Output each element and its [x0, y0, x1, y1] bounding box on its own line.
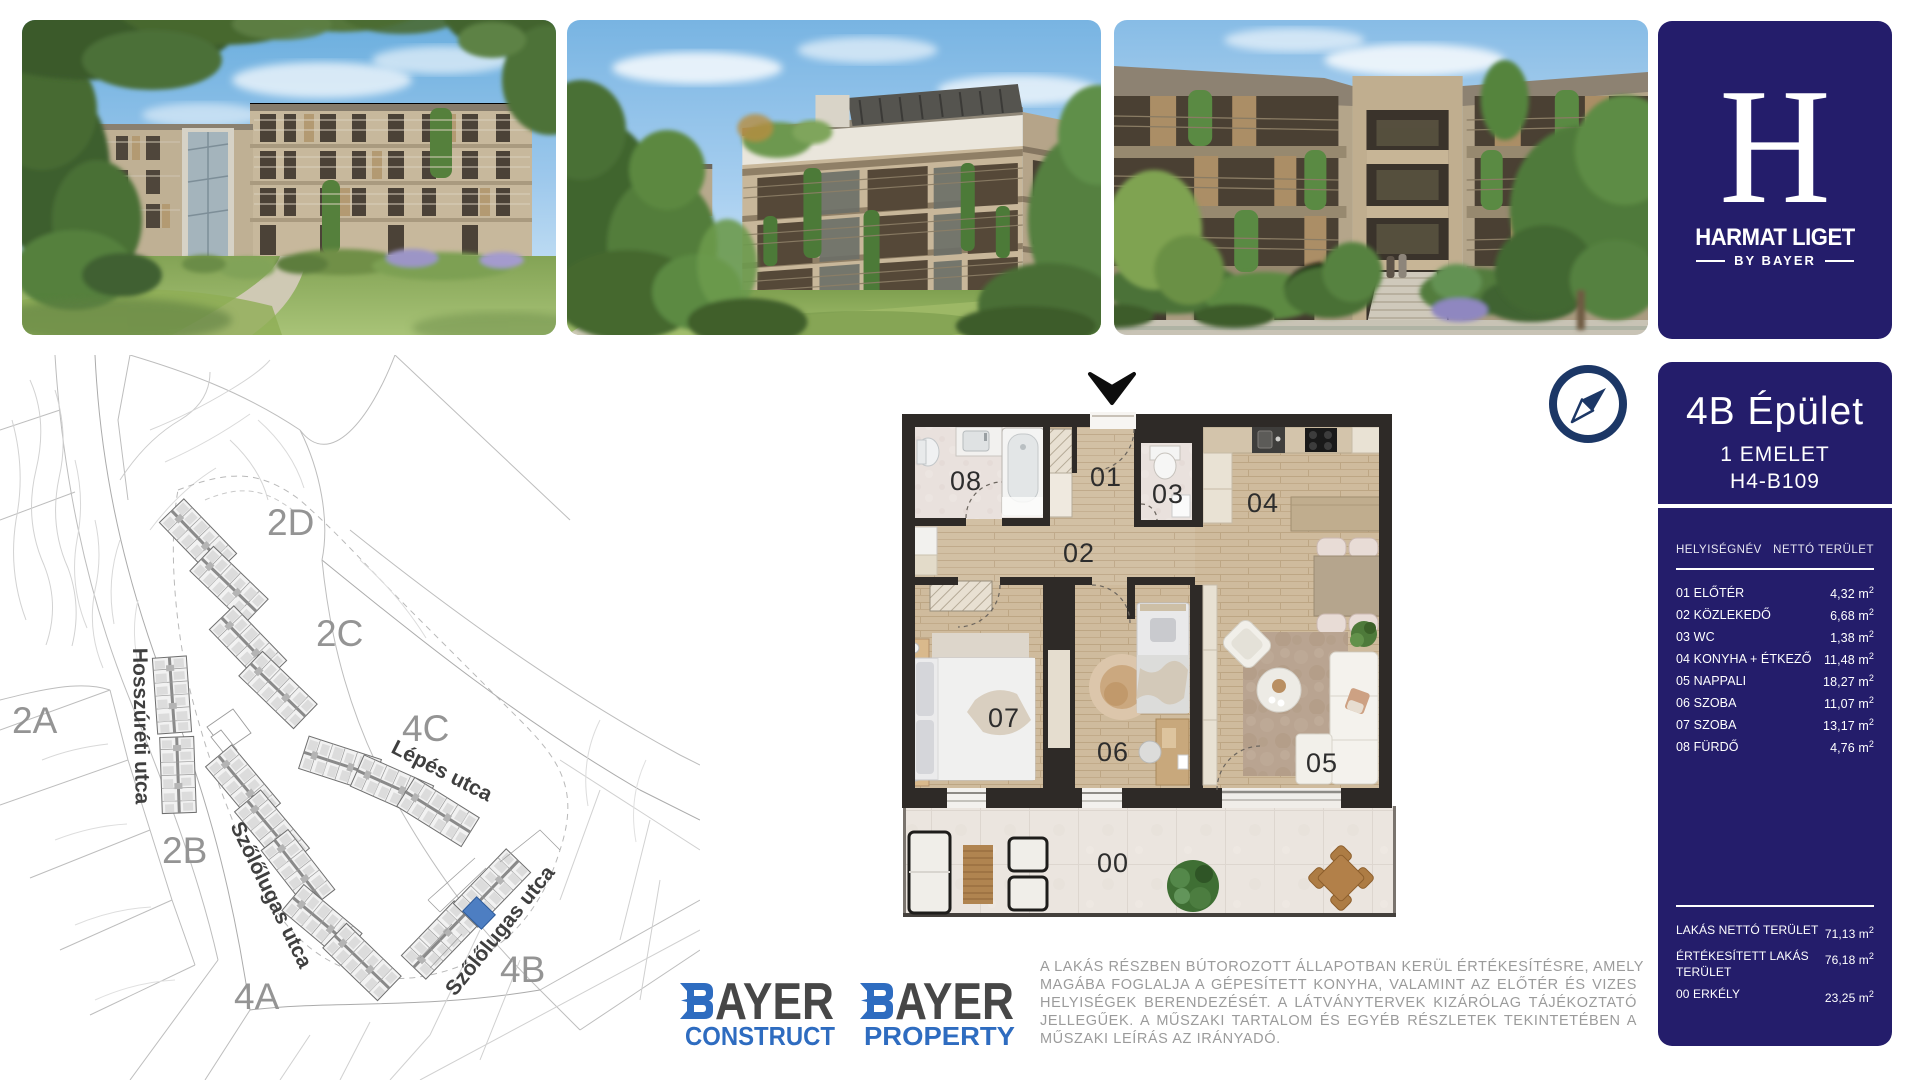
- svg-text:06: 06: [1097, 737, 1129, 767]
- svg-text:Hosszúréti utca: Hosszúréti utca: [128, 648, 154, 805]
- svg-text:03: 03: [1152, 479, 1184, 509]
- svg-text:PROPERTY: PROPERTY: [864, 1021, 1015, 1050]
- svg-text:05: 05: [1306, 748, 1338, 778]
- svg-text:04: 04: [1247, 488, 1279, 518]
- svg-text:07: 07: [988, 703, 1020, 733]
- svg-text:4B: 4B: [500, 949, 545, 990]
- svg-text:01: 01: [1090, 462, 1122, 492]
- svg-text:2C: 2C: [316, 613, 363, 654]
- svg-text:2D: 2D: [267, 502, 314, 543]
- svg-text:CONSTRUCT: CONSTRUCT: [685, 1021, 835, 1050]
- svg-text:00: 00: [1097, 848, 1129, 878]
- svg-text:02: 02: [1063, 538, 1095, 568]
- svg-text:08: 08: [950, 466, 982, 496]
- svg-text:2B: 2B: [162, 830, 207, 871]
- svg-text:2A: 2A: [12, 700, 58, 741]
- svg-text:4A: 4A: [234, 976, 280, 1017]
